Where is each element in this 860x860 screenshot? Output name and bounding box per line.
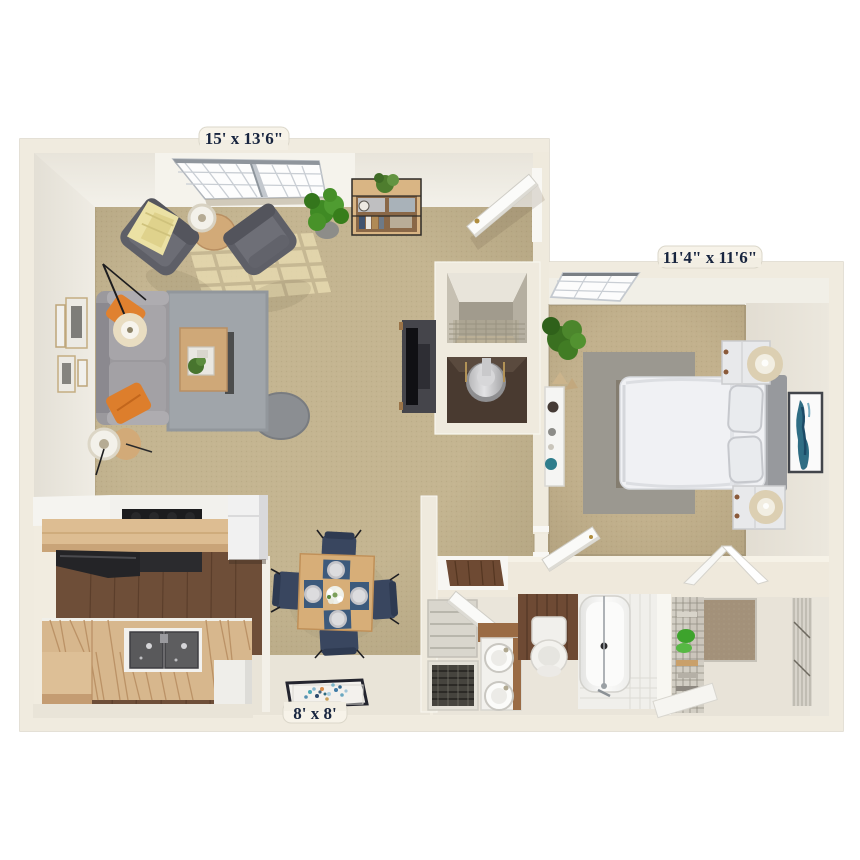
svg-text:8' x 8': 8' x 8' [293, 704, 336, 723]
svg-text:11'4" x 11'6": 11'4" x 11'6" [663, 248, 757, 267]
svg-text:15' x 13'6": 15' x 13'6" [205, 129, 283, 148]
